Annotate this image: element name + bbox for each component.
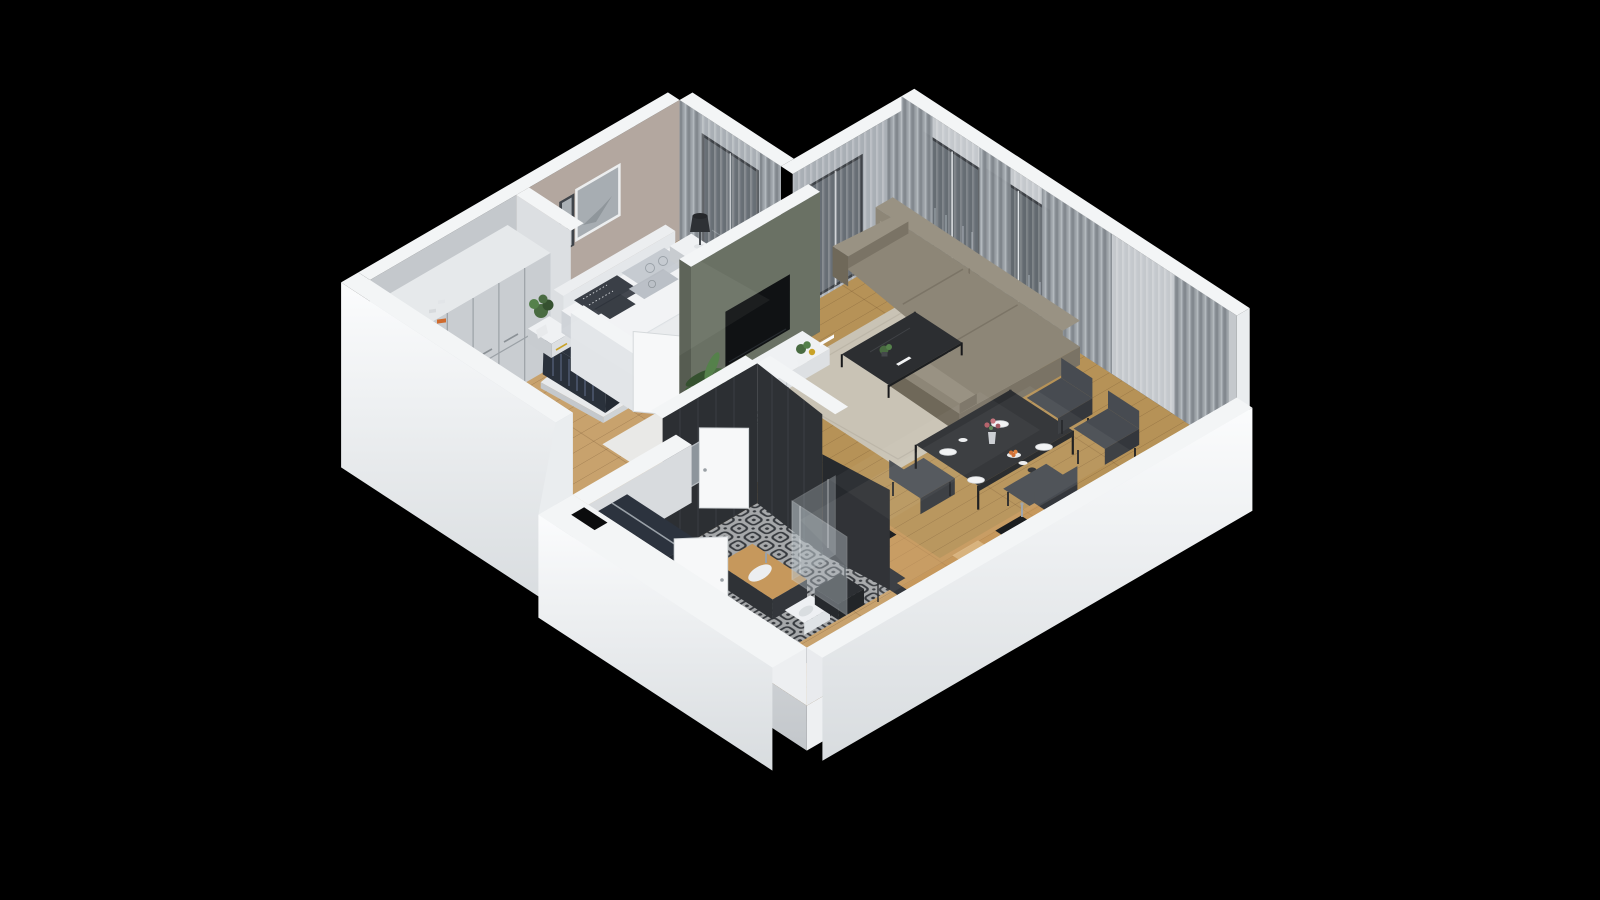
yellow-mug (809, 349, 815, 355)
door-handle (703, 468, 707, 472)
door-handle (720, 578, 724, 582)
floor-plan-render: ❄ (0, 0, 1600, 900)
isometric-apartment-svg: ❄ (0, 0, 1600, 900)
bathroom-door (699, 428, 748, 508)
